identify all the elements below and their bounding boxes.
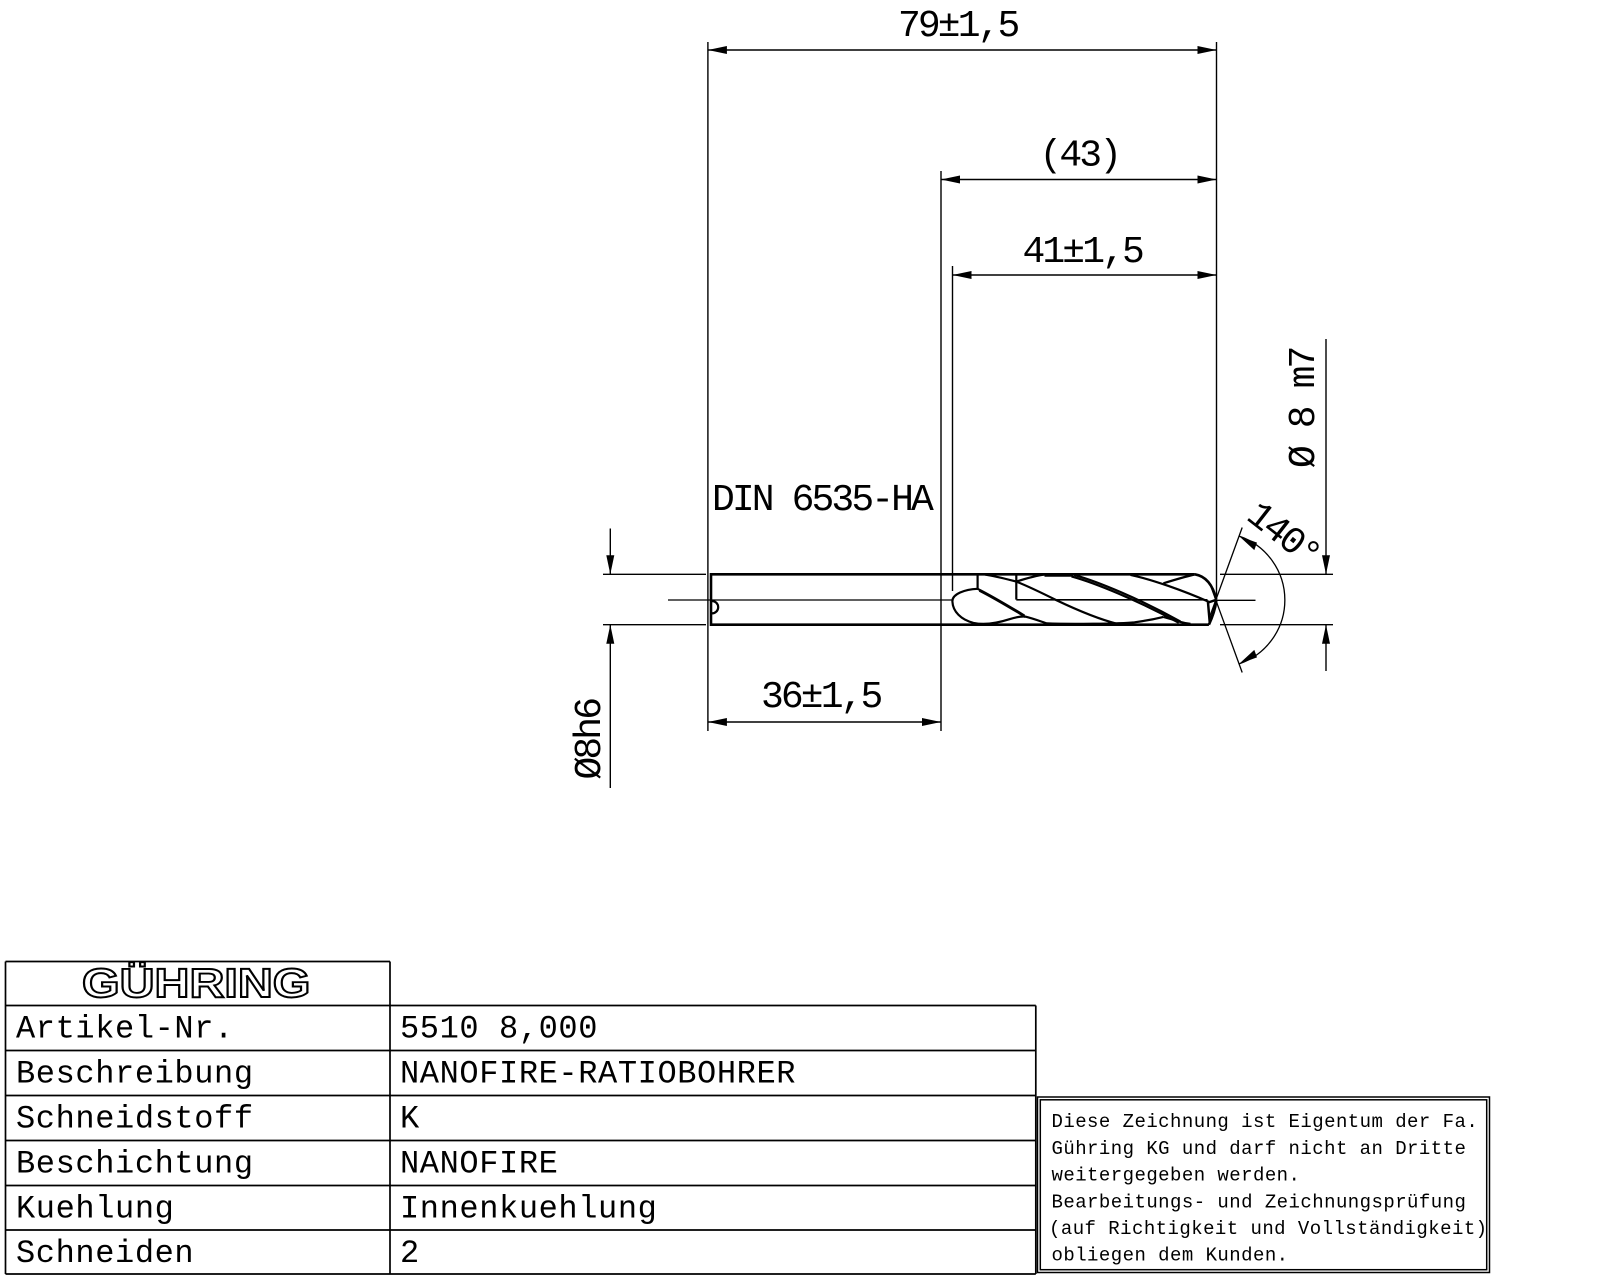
svg-text:(43): (43) bbox=[1040, 135, 1120, 178]
svg-text:Diese Zeichnung ist Eigentum d: Diese Zeichnung ist Eigentum der Fa. bbox=[1052, 1111, 1479, 1133]
svg-text:140°: 140° bbox=[1238, 494, 1327, 577]
svg-text:Beschreibung: Beschreibung bbox=[16, 1056, 254, 1093]
svg-text:weitergegeben werden.: weitergegeben werden. bbox=[1052, 1165, 1301, 1187]
svg-text:Schneidstoff: Schneidstoff bbox=[16, 1101, 254, 1138]
svg-text:79±1,5: 79±1,5 bbox=[898, 5, 1019, 48]
svg-text:5510 8,000: 5510 8,000 bbox=[400, 1011, 598, 1048]
svg-text:Schneiden: Schneiden bbox=[16, 1235, 194, 1272]
svg-text:Ø 8 m7: Ø 8 m7 bbox=[1283, 348, 1326, 468]
svg-text:GÜHRING: GÜHRING bbox=[82, 960, 310, 1007]
svg-text:K: K bbox=[400, 1101, 420, 1138]
svg-text:2: 2 bbox=[400, 1235, 420, 1272]
svg-text:NANOFIRE-RATIOBOHRER: NANOFIRE-RATIOBOHRER bbox=[400, 1056, 796, 1093]
svg-text:DIN 6535-HA: DIN 6535-HA bbox=[712, 479, 934, 522]
svg-text:41±1,5: 41±1,5 bbox=[1023, 231, 1144, 274]
svg-text:obliegen dem Kunden.: obliegen dem Kunden. bbox=[1052, 1245, 1289, 1267]
svg-text:Bearbeitungs- und Zeichnungspr: Bearbeitungs- und Zeichnungsprüfung bbox=[1052, 1191, 1467, 1213]
svg-text:(auf Richtigkeit und Vollständ: (auf Richtigkeit und Vollständigkeit) bbox=[1049, 1218, 1488, 1240]
svg-text:Kuehlung: Kuehlung bbox=[16, 1191, 174, 1228]
svg-text:NANOFIRE: NANOFIRE bbox=[400, 1146, 558, 1183]
svg-text:Artikel-Nr.: Artikel-Nr. bbox=[16, 1011, 234, 1048]
svg-text:Ø8h6: Ø8h6 bbox=[569, 699, 612, 780]
svg-text:Gühring KG und darf nicht an D: Gühring KG und darf nicht an Dritte bbox=[1052, 1138, 1467, 1160]
svg-text:36±1,5: 36±1,5 bbox=[761, 676, 882, 719]
svg-text:Beschichtung: Beschichtung bbox=[16, 1146, 254, 1183]
svg-text:Innenkuehlung: Innenkuehlung bbox=[400, 1191, 657, 1228]
